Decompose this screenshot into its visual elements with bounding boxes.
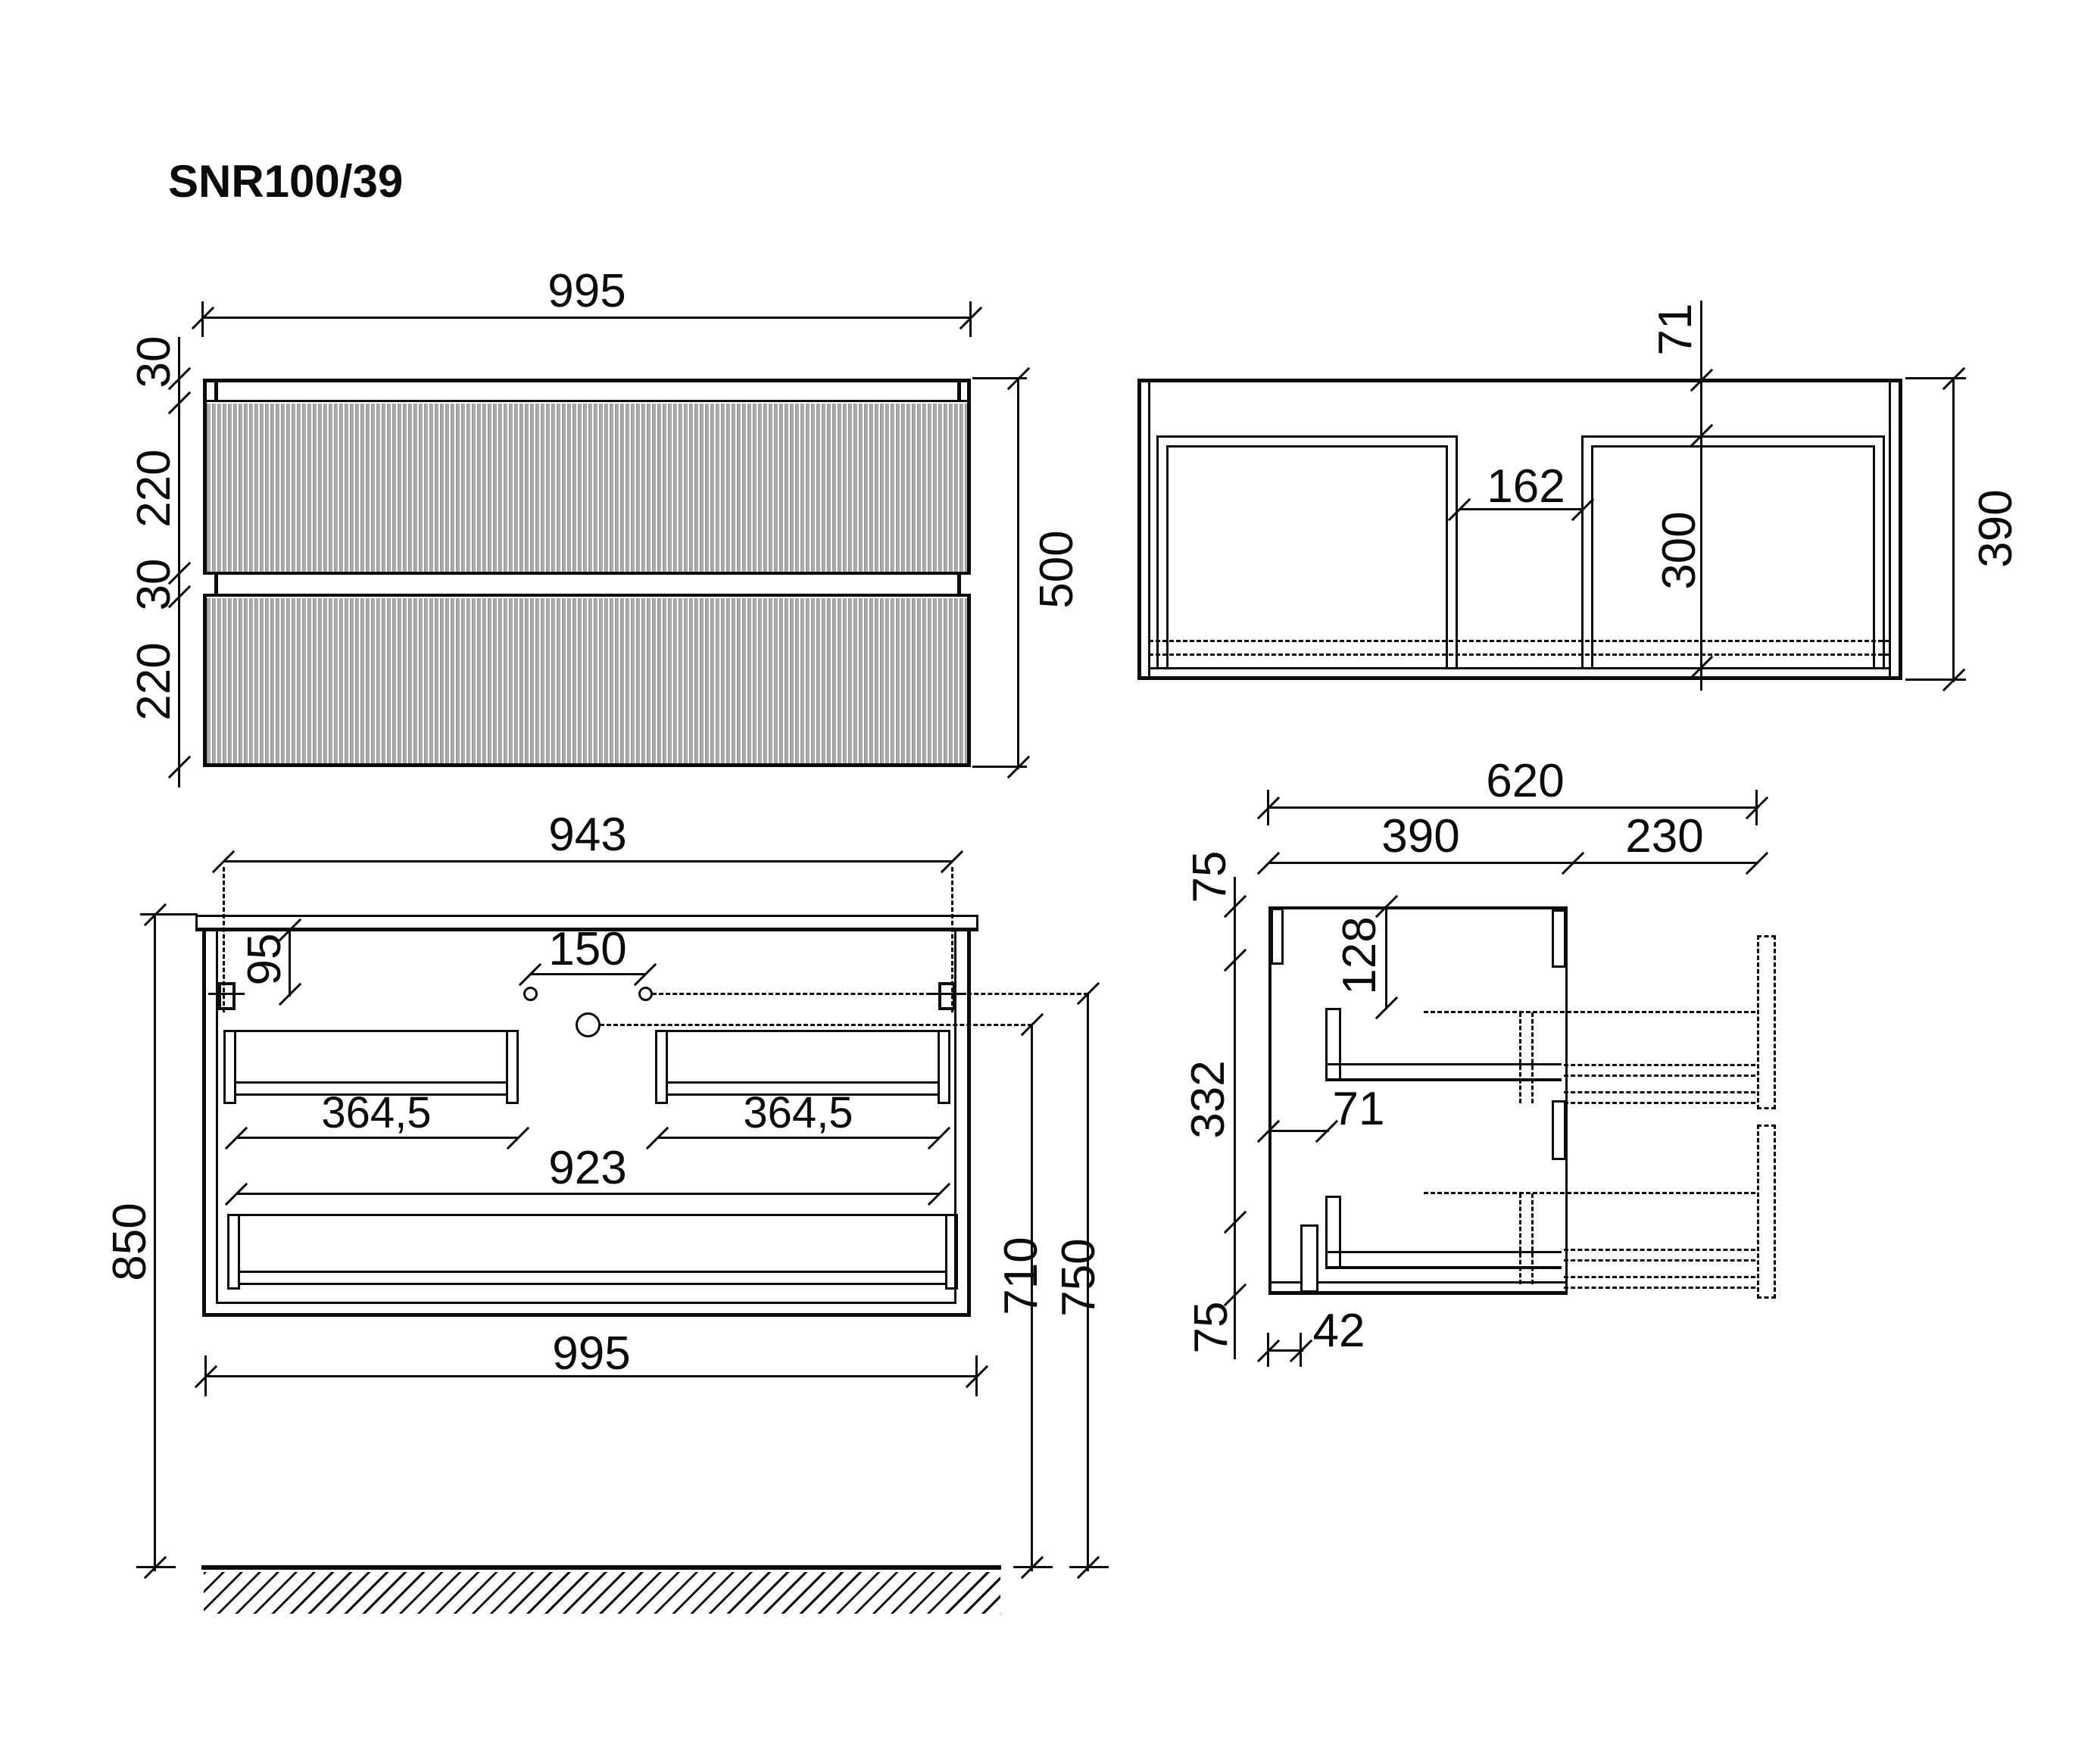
side-drawer-front-upper-hidden [1757,935,1776,1109]
front-recess-end-cap [214,575,218,594]
mounting-hole-right [638,987,653,1001]
side-upper-drawer-bottom [1325,1063,1562,1065]
dim-mount-right-rail: 364,5 [743,1091,853,1135]
front-recess-end-cap [957,382,961,402]
dim-side-total-depth: 620 [1486,758,1564,805]
hidden-line [1424,1192,1755,1194]
dim-side-rail-drop: 128 [1337,916,1384,994]
mount-wall-bracket-left [218,982,236,1010]
dimension-line [954,930,956,1304]
dim-mount-drain-height: 710 [998,1237,1045,1315]
dimension-line [657,1137,939,1139]
mounting-hole-left [523,987,538,1001]
dim-plan-depth: 390 [1973,489,2020,567]
dim-side-bottom-gap: 75 [1188,1302,1235,1354]
plan-right-drawer-box-inner [1591,445,1875,669]
front-handle-recess [203,572,971,597]
side-foot-bracket [1300,1224,1318,1293]
side-back-bracket [1271,908,1284,965]
side-cabinet-top [1268,906,1568,909]
dim-front-seg-1: 30 [131,336,178,388]
dimension-line [206,1375,977,1377]
dim-mount-hole-spacing: 150 [548,926,626,973]
front-recess-end-cap [214,382,218,402]
front-drawer-1-fluted-panel [207,404,967,572]
hidden-line [652,993,1088,995]
side-front-bracket-mid [1552,1100,1566,1160]
dimension-line [289,930,291,997]
floor-line [201,1565,1001,1570]
mount-rail-end-cap [938,1030,950,1104]
hidden-line [1564,1276,1755,1278]
hidden-line [1564,1259,1755,1262]
dim-mount-holes-height: 750 [1056,1238,1103,1316]
dimension-line [1017,377,1019,769]
dimension-line [1459,508,1583,510]
side-lower-drawer-bottom [1325,1266,1562,1269]
dim-front-seg-4: 220 [131,642,178,720]
mount-rail-bottom [227,1214,958,1285]
dim-side-mid-span: 332 [1185,1060,1232,1138]
mount-rail-end-cap [655,1030,668,1104]
dimension-line [1385,906,1387,1009]
dimension-line [203,317,971,319]
dim-mount-bottom-rail: 923 [548,1145,626,1192]
dim-side-front-extension: 230 [1625,813,1703,860]
hidden-line [1149,640,1889,642]
hidden-line [1564,1102,1755,1104]
mount-rail-end-cap [506,1030,519,1104]
dim-front-seg-2: 220 [131,449,178,527]
hidden-line [1531,1012,1534,1103]
dimension-line [530,973,645,975]
side-upper-drawer-bottom [1325,1078,1562,1081]
front-top-recess [207,382,967,402]
dimension-line [223,860,952,862]
dimension-line [1905,678,1966,681]
front-drawer-2-fluted-panel [207,598,967,763]
dim-mount-left-rail: 364,5 [321,1091,431,1135]
dim-plan-drawer-depth: 300 [1656,511,1703,589]
dim-plan-gap: 162 [1487,463,1565,510]
dim-side-foot-inset: 42 [1313,1308,1365,1355]
dimension-line [1700,301,1702,691]
side-drawer-front-lower-hidden [1757,1124,1776,1299]
dimension-line [1889,382,1891,680]
hidden-line [1424,1011,1755,1013]
dimension-line [236,1137,518,1139]
hidden-line [1531,1193,1534,1284]
dimension-line [1268,806,1758,809]
hidden-line [223,867,225,1012]
drawing-title: SNR100/39 [168,155,403,207]
side-lower-drawer-back [1325,1196,1341,1269]
dim-front-height: 500 [1034,530,1081,608]
hidden-line [1564,1064,1755,1066]
side-lower-drawer-bottom [1325,1251,1562,1253]
technical-drawing-sheet: SNR100/39 995 30 220 30 220 500 162 71 3… [0,0,2100,1753]
mount-rail-line [657,1081,948,1084]
side-front-bracket-top [1552,909,1566,968]
dimension-line [1268,1130,1329,1132]
dim-side-back-clearance: 71 [1333,1086,1385,1133]
dimension-line [154,915,156,1571]
dim-mount-hanger-span: 943 [548,812,626,859]
dim-mount-width: 995 [552,1330,630,1377]
dimension-line [216,930,218,1304]
mount-rail-end-cap [223,1030,236,1104]
hidden-line [951,867,953,1012]
dimension-line [1905,377,1966,379]
hidden-line [1564,1075,1755,1077]
dimension-line [1952,377,1955,682]
dimension-line [1234,877,1236,1359]
dimension-line [1148,382,1150,680]
hidden-line [1149,653,1889,656]
dimension-line [236,1193,939,1195]
dimension-line [208,993,245,995]
mount-rail-end-cap [227,1214,240,1290]
mount-rail-upper-right [655,1030,950,1096]
mount-rail-line [229,1271,956,1273]
dim-plan-back-offset: 71 [1652,304,1699,356]
mount-rail-line [226,1081,516,1084]
dimension-line [1268,862,1758,864]
dimension-line [1087,993,1089,1571]
dim-side-top-gap: 75 [1187,851,1234,903]
dimension-line [217,1302,956,1304]
mount-rail-upper-left [223,1030,519,1096]
hidden-line [1519,1193,1521,1284]
hidden-line [600,1024,1032,1026]
dim-mount-top-height: 850 [107,1202,154,1280]
hidden-line [1564,1091,1755,1093]
front-recess-end-cap [957,575,961,594]
dim-mount-hanger-drop: 95 [242,934,289,986]
hidden-line [1564,1249,1755,1251]
dimension-line [1149,667,1891,669]
hidden-line [1564,1287,1755,1289]
side-upper-drawer-back [1325,1008,1341,1081]
drain-hole [576,1012,601,1037]
dim-front-width: 995 [548,268,626,315]
dimension-line [1031,1025,1033,1571]
hidden-line [1519,1012,1521,1103]
floor-hatching [204,1572,1000,1614]
plan-left-drawer-box-inner [1166,445,1448,669]
dim-side-body-depth: 390 [1381,813,1459,860]
dimension-line [140,913,198,915]
